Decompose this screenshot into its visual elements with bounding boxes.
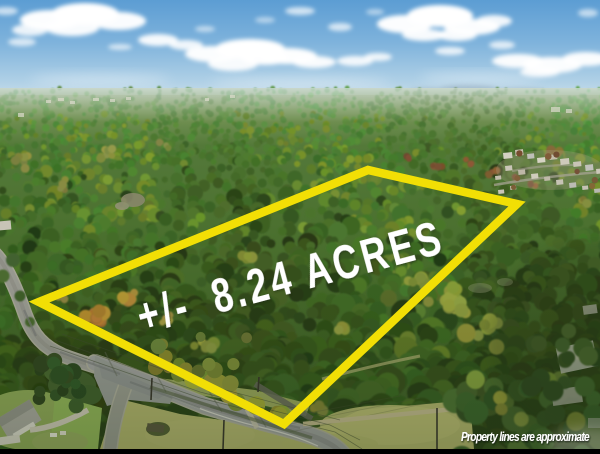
svg-text:Property lines are approximate: Property lines are approximate (461, 430, 590, 444)
